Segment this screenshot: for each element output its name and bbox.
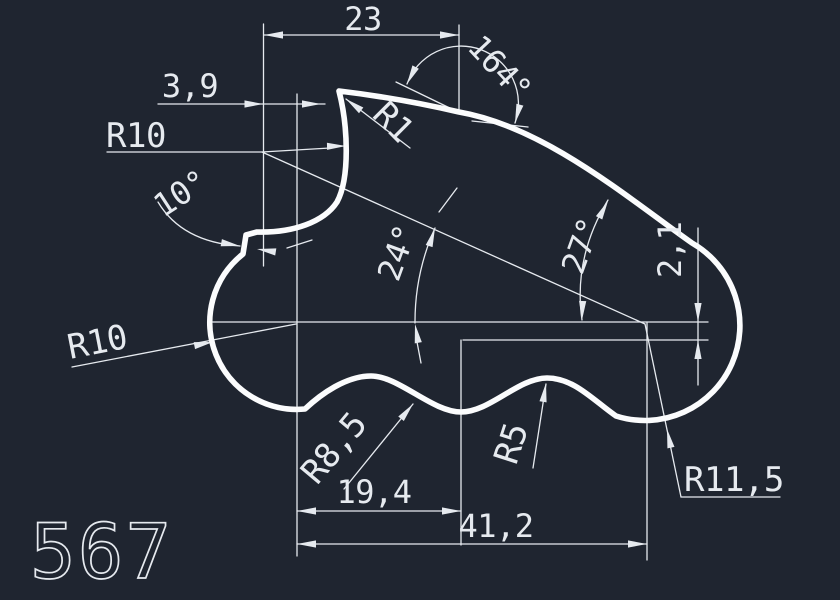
dim-overall-length-label: 41,2: [458, 507, 533, 545]
cad-viewport: 23 3,9 164° R1 R10 10° 24° 27° 2,1 R10 R…: [0, 0, 840, 600]
cad-canvas[interactable]: 23 3,9 164° R1 R10 10° 24° 27° 2,1 R10 R…: [0, 0, 840, 600]
dim-right-lobe-radius-label: R11,5: [684, 460, 784, 500]
dim-right-drop-label: 2,1: [651, 222, 689, 278]
dim-top-width-label: 23: [344, 0, 382, 38]
part-number: 567: [30, 507, 173, 596]
dim-upper-concave-radius-label: R10: [106, 116, 166, 156]
dim-mid-length-label: 19,4: [336, 473, 411, 511]
dim-top-offset-label: 3,9: [162, 67, 218, 105]
